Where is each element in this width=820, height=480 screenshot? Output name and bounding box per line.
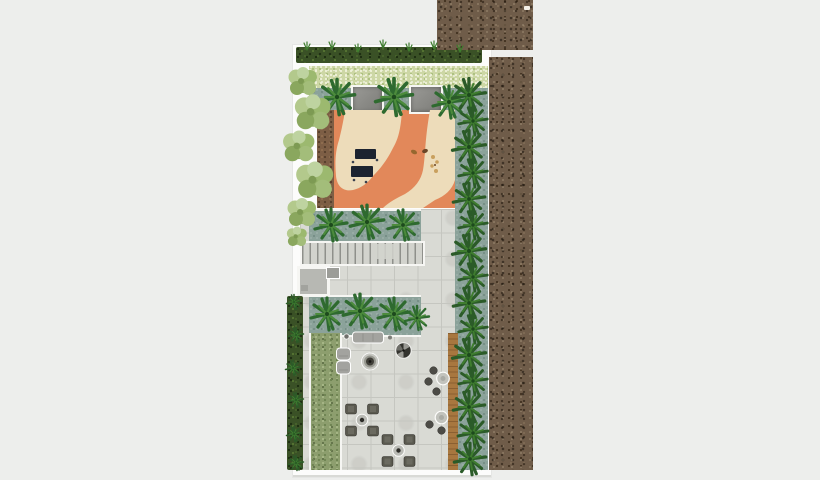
groundcover-bed [309, 66, 488, 88]
palm-bed-lower [309, 295, 421, 337]
wood-deck-strip [448, 333, 458, 470]
site-plan-canvas [0, 0, 820, 480]
stairs [300, 241, 425, 266]
gravel-roof-strip [489, 57, 533, 470]
palm-hedge-right-bed [455, 88, 488, 470]
left-hedge-border [287, 296, 303, 470]
playground-mulch-edge [317, 110, 334, 208]
roof-vent-marker [524, 6, 530, 10]
shade-canopy-2 [409, 85, 443, 114]
moss-planting-strip [309, 333, 342, 470]
landing-notch [301, 285, 308, 291]
gravel-roof-top [437, 0, 533, 50]
kids-playground [334, 110, 455, 208]
stairs-mid-landing [376, 244, 395, 259]
landing-bench [326, 267, 340, 279]
palm-bed-upper [309, 209, 421, 245]
shade-canopy-1 [351, 85, 384, 114]
